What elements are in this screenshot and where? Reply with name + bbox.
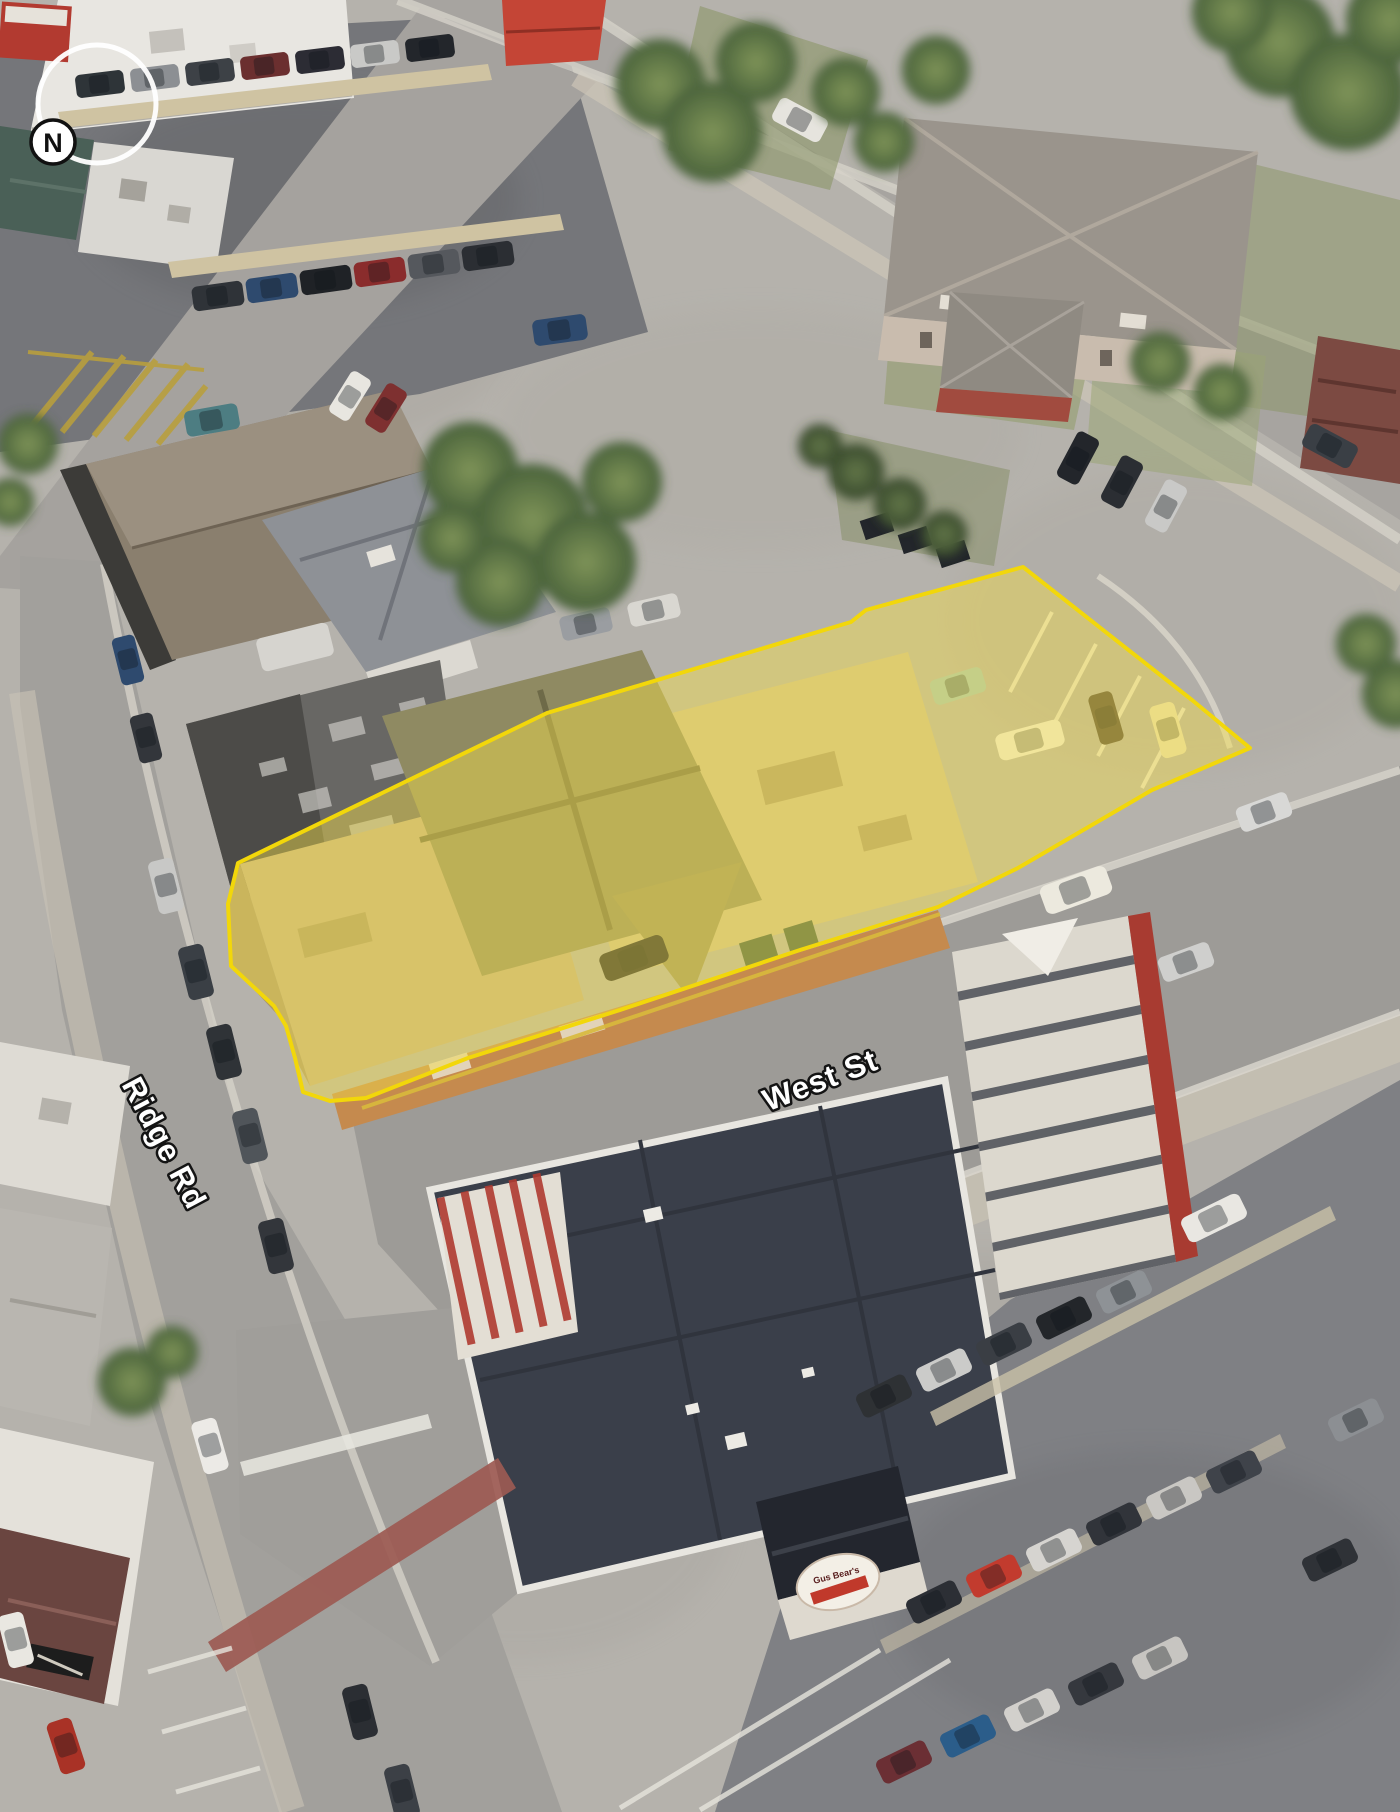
- building-red-house: [936, 292, 1084, 422]
- aerial-basemap: Gus Bear's Ridge Rd West St N: [0, 0, 1400, 1812]
- box-truck: [0, 2, 72, 63]
- aerial-map-view[interactable]: Gus Bear's Ridge Rd West St N: [0, 0, 1400, 1812]
- building-red-roof: [502, 0, 606, 66]
- compass-n-label: N: [43, 128, 63, 158]
